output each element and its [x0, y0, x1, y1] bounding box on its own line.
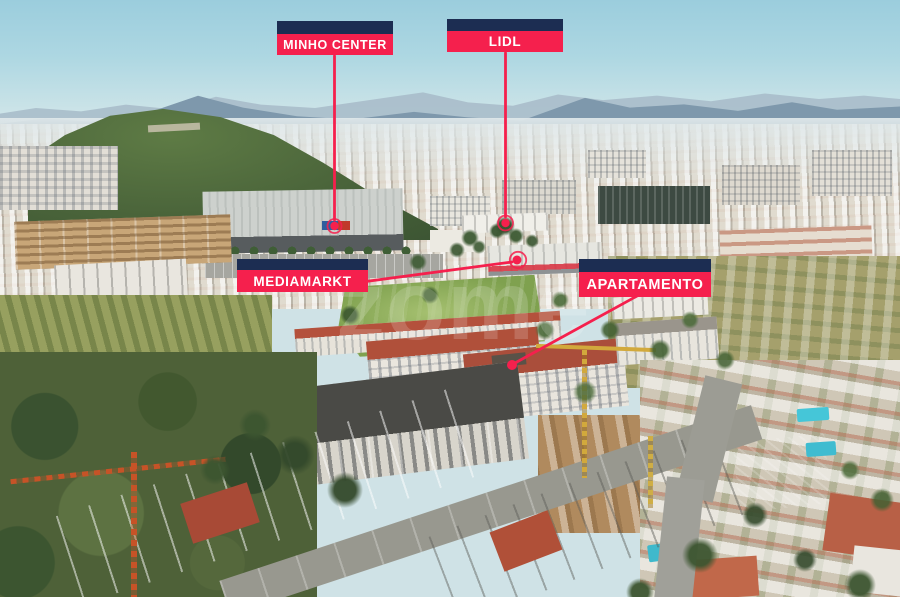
- label-lidl-text: LIDL: [447, 31, 563, 52]
- label-apartamento-topbar: [579, 259, 711, 272]
- label-apartamento: APARTAMENTO: [579, 259, 711, 297]
- label-apartamento-text: APARTAMENTO: [579, 272, 711, 297]
- label-mediamarkt-text: MEDIAMARKT: [237, 270, 368, 292]
- label-lidl-topbar: [447, 19, 563, 31]
- label-minho-center: MINHO CENTER: [277, 21, 393, 55]
- label-mediamarkt-topbar: [237, 259, 368, 270]
- aerial-photo-scene: zome MINHO CENTER LIDL MEDIAMARKT APARTA…: [0, 0, 900, 597]
- label-minho-center-text: MINHO CENTER: [277, 34, 393, 55]
- label-mediamarkt: MEDIAMARKT: [237, 259, 368, 292]
- label-lidl: LIDL: [447, 19, 563, 52]
- label-minho-center-topbar: [277, 21, 393, 34]
